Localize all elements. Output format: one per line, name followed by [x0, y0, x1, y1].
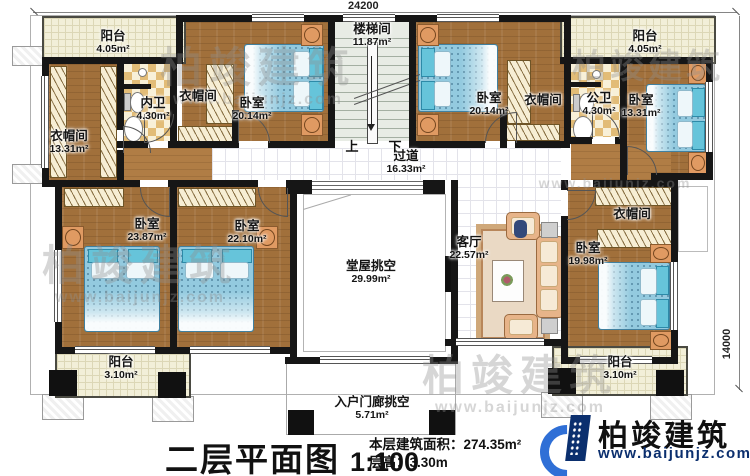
nightstand: [301, 24, 323, 46]
room-label-stairwell: 楼梯间11.87m²: [353, 23, 392, 48]
room-area: 11.87m²: [353, 37, 392, 48]
room-label-bed-tr: 卧室20.14m²: [469, 92, 508, 117]
wall: [176, 15, 183, 64]
bath-partition: [571, 82, 601, 87]
room-name: 卧室: [127, 218, 166, 232]
room-label-balcony-tl: 阳台4.05m²: [96, 30, 129, 55]
room-label-bed-right: 卧室13.31m²: [621, 94, 660, 119]
wall: [409, 141, 485, 148]
room-area: 4.05m²: [628, 44, 661, 55]
room-area: 22.10m²: [227, 234, 266, 245]
side-table: [541, 222, 558, 238]
window: [437, 14, 499, 22]
headboard: [421, 81, 435, 110]
room-name: 入户门廊挑空: [334, 396, 409, 410]
window: [190, 346, 270, 354]
headboard: [182, 249, 212, 263]
pillow: [434, 51, 451, 77]
logo-website: www.baijunjz.com: [598, 445, 750, 462]
room-area: 20.14m²: [232, 111, 271, 122]
room-label-cloak-right: 衣帽间: [613, 208, 651, 222]
stair-down-label: 下: [388, 136, 401, 155]
wall-corner-block: [423, 180, 445, 194]
bath-partition: [121, 84, 151, 89]
room-name: 阳台: [628, 30, 661, 44]
room-name: 衣帽间: [524, 94, 562, 108]
room-name: 卧室: [621, 94, 660, 108]
headboard: [222, 249, 252, 263]
room-name: 阳台: [603, 356, 636, 370]
room-label-bed-br: 卧室19.98m²: [568, 242, 607, 267]
side-table: [541, 318, 558, 334]
room-label-bed-mc: 卧室22.10m²: [227, 220, 266, 245]
column: [49, 370, 77, 396]
headboard: [421, 48, 435, 77]
room-area: 5.71m²: [334, 410, 409, 421]
floor-height-label: 层高：: [369, 455, 410, 470]
wall: [268, 141, 334, 148]
column: [429, 410, 455, 435]
logo-mark-icon: [540, 413, 592, 471]
room-area: 19.98m²: [568, 256, 607, 267]
wall: [328, 15, 335, 148]
pillow: [185, 262, 214, 279]
room-area: 4.05m²: [96, 44, 129, 55]
headboard: [692, 121, 705, 150]
room-name: 客厅: [449, 236, 488, 250]
room-label-cloak-left: 衣帽间13.31m²: [49, 130, 88, 155]
window: [705, 82, 713, 152]
wall: [117, 57, 124, 130]
sofa-long: [536, 236, 564, 318]
wardrobe: [64, 188, 124, 207]
floor-height-value: 3.30m: [410, 455, 448, 470]
wall: [170, 180, 177, 354]
porch-outline: [455, 364, 456, 434]
wardrobe: [595, 187, 673, 206]
plan-stats: 本层建筑面积：274.35m² 层高：3.30m: [369, 436, 521, 472]
column: [548, 368, 576, 394]
wall: [168, 180, 258, 187]
headboard: [309, 48, 323, 77]
nightstand: [688, 152, 708, 174]
nightstand: [650, 244, 672, 263]
room-label-balcony-tr: 阳台4.05m²: [628, 30, 661, 55]
wall: [170, 57, 177, 148]
pillow: [220, 262, 249, 279]
floor-height-row: 层高：3.30m: [369, 454, 521, 472]
room-name: 卧室: [568, 242, 607, 256]
wall: [55, 180, 140, 187]
stair-up-label: 上: [345, 136, 358, 155]
footing-pad: [152, 396, 194, 422]
floor-area-row: 本层建筑面积：274.35m²: [369, 436, 521, 454]
wall: [451, 180, 458, 364]
window: [75, 346, 155, 354]
room-area: 3.10m²: [603, 370, 636, 381]
floor-area-label: 本层建筑面积：: [369, 437, 464, 452]
room-area: 16.33m²: [386, 164, 425, 175]
floor-plan-canvas: 柏竣建筑 www.baijunjz.com 柏竣建筑 www.baijunjz.…: [0, 0, 750, 476]
column: [288, 410, 314, 435]
headboard: [88, 249, 118, 263]
hall-railing: [312, 181, 423, 191]
window: [54, 250, 62, 322]
logo-windows-icon: [569, 421, 582, 455]
room-name: 楼梯间: [353, 23, 392, 37]
nightstand: [417, 24, 439, 46]
wall: [168, 141, 238, 148]
room-label-cloak-top1: 衣帽间: [179, 90, 217, 104]
wall: [651, 173, 712, 180]
wall: [561, 216, 568, 364]
footing-pad: [12, 46, 44, 66]
room-name: 内卫: [136, 97, 169, 111]
dimension-right-line: [739, 16, 740, 390]
room-label-balcony-br: 阳台3.10m²: [603, 356, 636, 381]
headboard: [692, 88, 705, 117]
stair-arrow-head: [367, 124, 375, 131]
room-label-balcony-bl: 阳台3.10m²: [104, 356, 137, 381]
window: [252, 14, 304, 22]
wall: [409, 15, 416, 148]
pillow: [677, 90, 693, 117]
room-name: 衣帽间: [179, 90, 217, 104]
pillow: [677, 121, 693, 148]
porch-outline: [286, 364, 287, 434]
wardrobe: [100, 66, 117, 178]
headboard: [656, 266, 669, 295]
room-name: 卧室: [227, 220, 266, 234]
room-label-bed-tl: 卧室20.14m²: [232, 97, 271, 122]
drain-icon: [592, 70, 601, 79]
window: [41, 76, 49, 168]
sofa-cushion: [540, 289, 558, 311]
sofa-cushion: [540, 241, 558, 263]
room-name: 衣帽间: [49, 130, 88, 144]
room-label-cloak-top2: 衣帽间: [524, 94, 562, 108]
wall: [515, 141, 570, 148]
window: [670, 262, 678, 330]
dimension-right-label: 14000: [721, 322, 733, 366]
chair-cushion: [509, 319, 533, 335]
room-name: 衣帽间: [613, 208, 651, 222]
wall: [560, 57, 712, 64]
bed: [84, 246, 160, 332]
wardrobe: [50, 66, 67, 178]
room-name: 卧室: [469, 92, 508, 106]
dimension-top-label: 24200: [348, 0, 379, 12]
pillow: [293, 51, 310, 77]
room-area: 4.30m²: [136, 111, 169, 122]
room-name: 阳台: [104, 356, 137, 370]
pillow: [126, 262, 155, 279]
side-bay-outline: [678, 186, 708, 252]
floor-area-value: 274.35m²: [464, 437, 522, 452]
drain-icon: [138, 68, 147, 77]
wall: [561, 180, 568, 190]
pillow: [91, 262, 120, 279]
sofa-cushion: [540, 265, 558, 287]
wall: [290, 180, 297, 364]
window: [456, 338, 544, 346]
wall: [593, 180, 677, 187]
nightstand: [650, 331, 672, 350]
pillow: [640, 268, 657, 295]
headboard: [656, 299, 669, 328]
footing-pad: [12, 164, 44, 184]
room-area: 3.10m²: [104, 370, 137, 381]
pillow: [640, 299, 657, 326]
nightstand: [301, 114, 323, 136]
window: [320, 356, 430, 364]
pillow: [434, 81, 451, 107]
room-name: 卧室: [232, 97, 271, 111]
room-name: 公卫: [582, 92, 615, 106]
nightstand: [688, 62, 708, 84]
wall: [42, 57, 182, 64]
nightstand: [62, 226, 84, 249]
room-label-hall-void: 堂屋挑空29.99m²: [346, 260, 396, 285]
dimension-top-line: [33, 12, 737, 13]
room-area: 13.31m²: [621, 108, 660, 119]
room-label-bath-public: 公卫4.30m²: [582, 92, 615, 117]
wall: [117, 150, 124, 187]
nightstand: [417, 114, 439, 136]
plan-title: 二层平面图: [165, 443, 340, 476]
room-label-living: 客厅22.57m²: [449, 236, 488, 261]
wardrobe: [178, 188, 256, 207]
room-name: 阳台: [96, 30, 129, 44]
bed: [178, 246, 254, 332]
pillow: [293, 81, 310, 107]
room-label-bath-inner: 内卫4.30m²: [136, 97, 169, 122]
room-name: 堂屋挑空: [346, 260, 396, 274]
room-area: 29.99m²: [346, 274, 396, 285]
room-area: 23.87m²: [127, 232, 166, 243]
armchair: [504, 314, 538, 340]
room-area: 4.30m²: [582, 106, 615, 117]
wall: [564, 15, 571, 144]
table-flower: [501, 274, 513, 286]
room-area: 20.14m²: [469, 106, 508, 117]
column: [158, 372, 186, 398]
bed: [598, 262, 670, 330]
headboard: [309, 81, 323, 110]
room-area: 13.31m²: [49, 144, 88, 155]
room-label-porch-void: 入户门廊挑空5.71m²: [334, 396, 409, 421]
headboard: [128, 249, 158, 263]
room-area: 22.57m²: [449, 250, 488, 261]
person-figure: [514, 220, 527, 238]
window: [343, 14, 395, 22]
column: [656, 370, 684, 396]
room-label-bed-ml: 卧室23.87m²: [127, 218, 166, 243]
